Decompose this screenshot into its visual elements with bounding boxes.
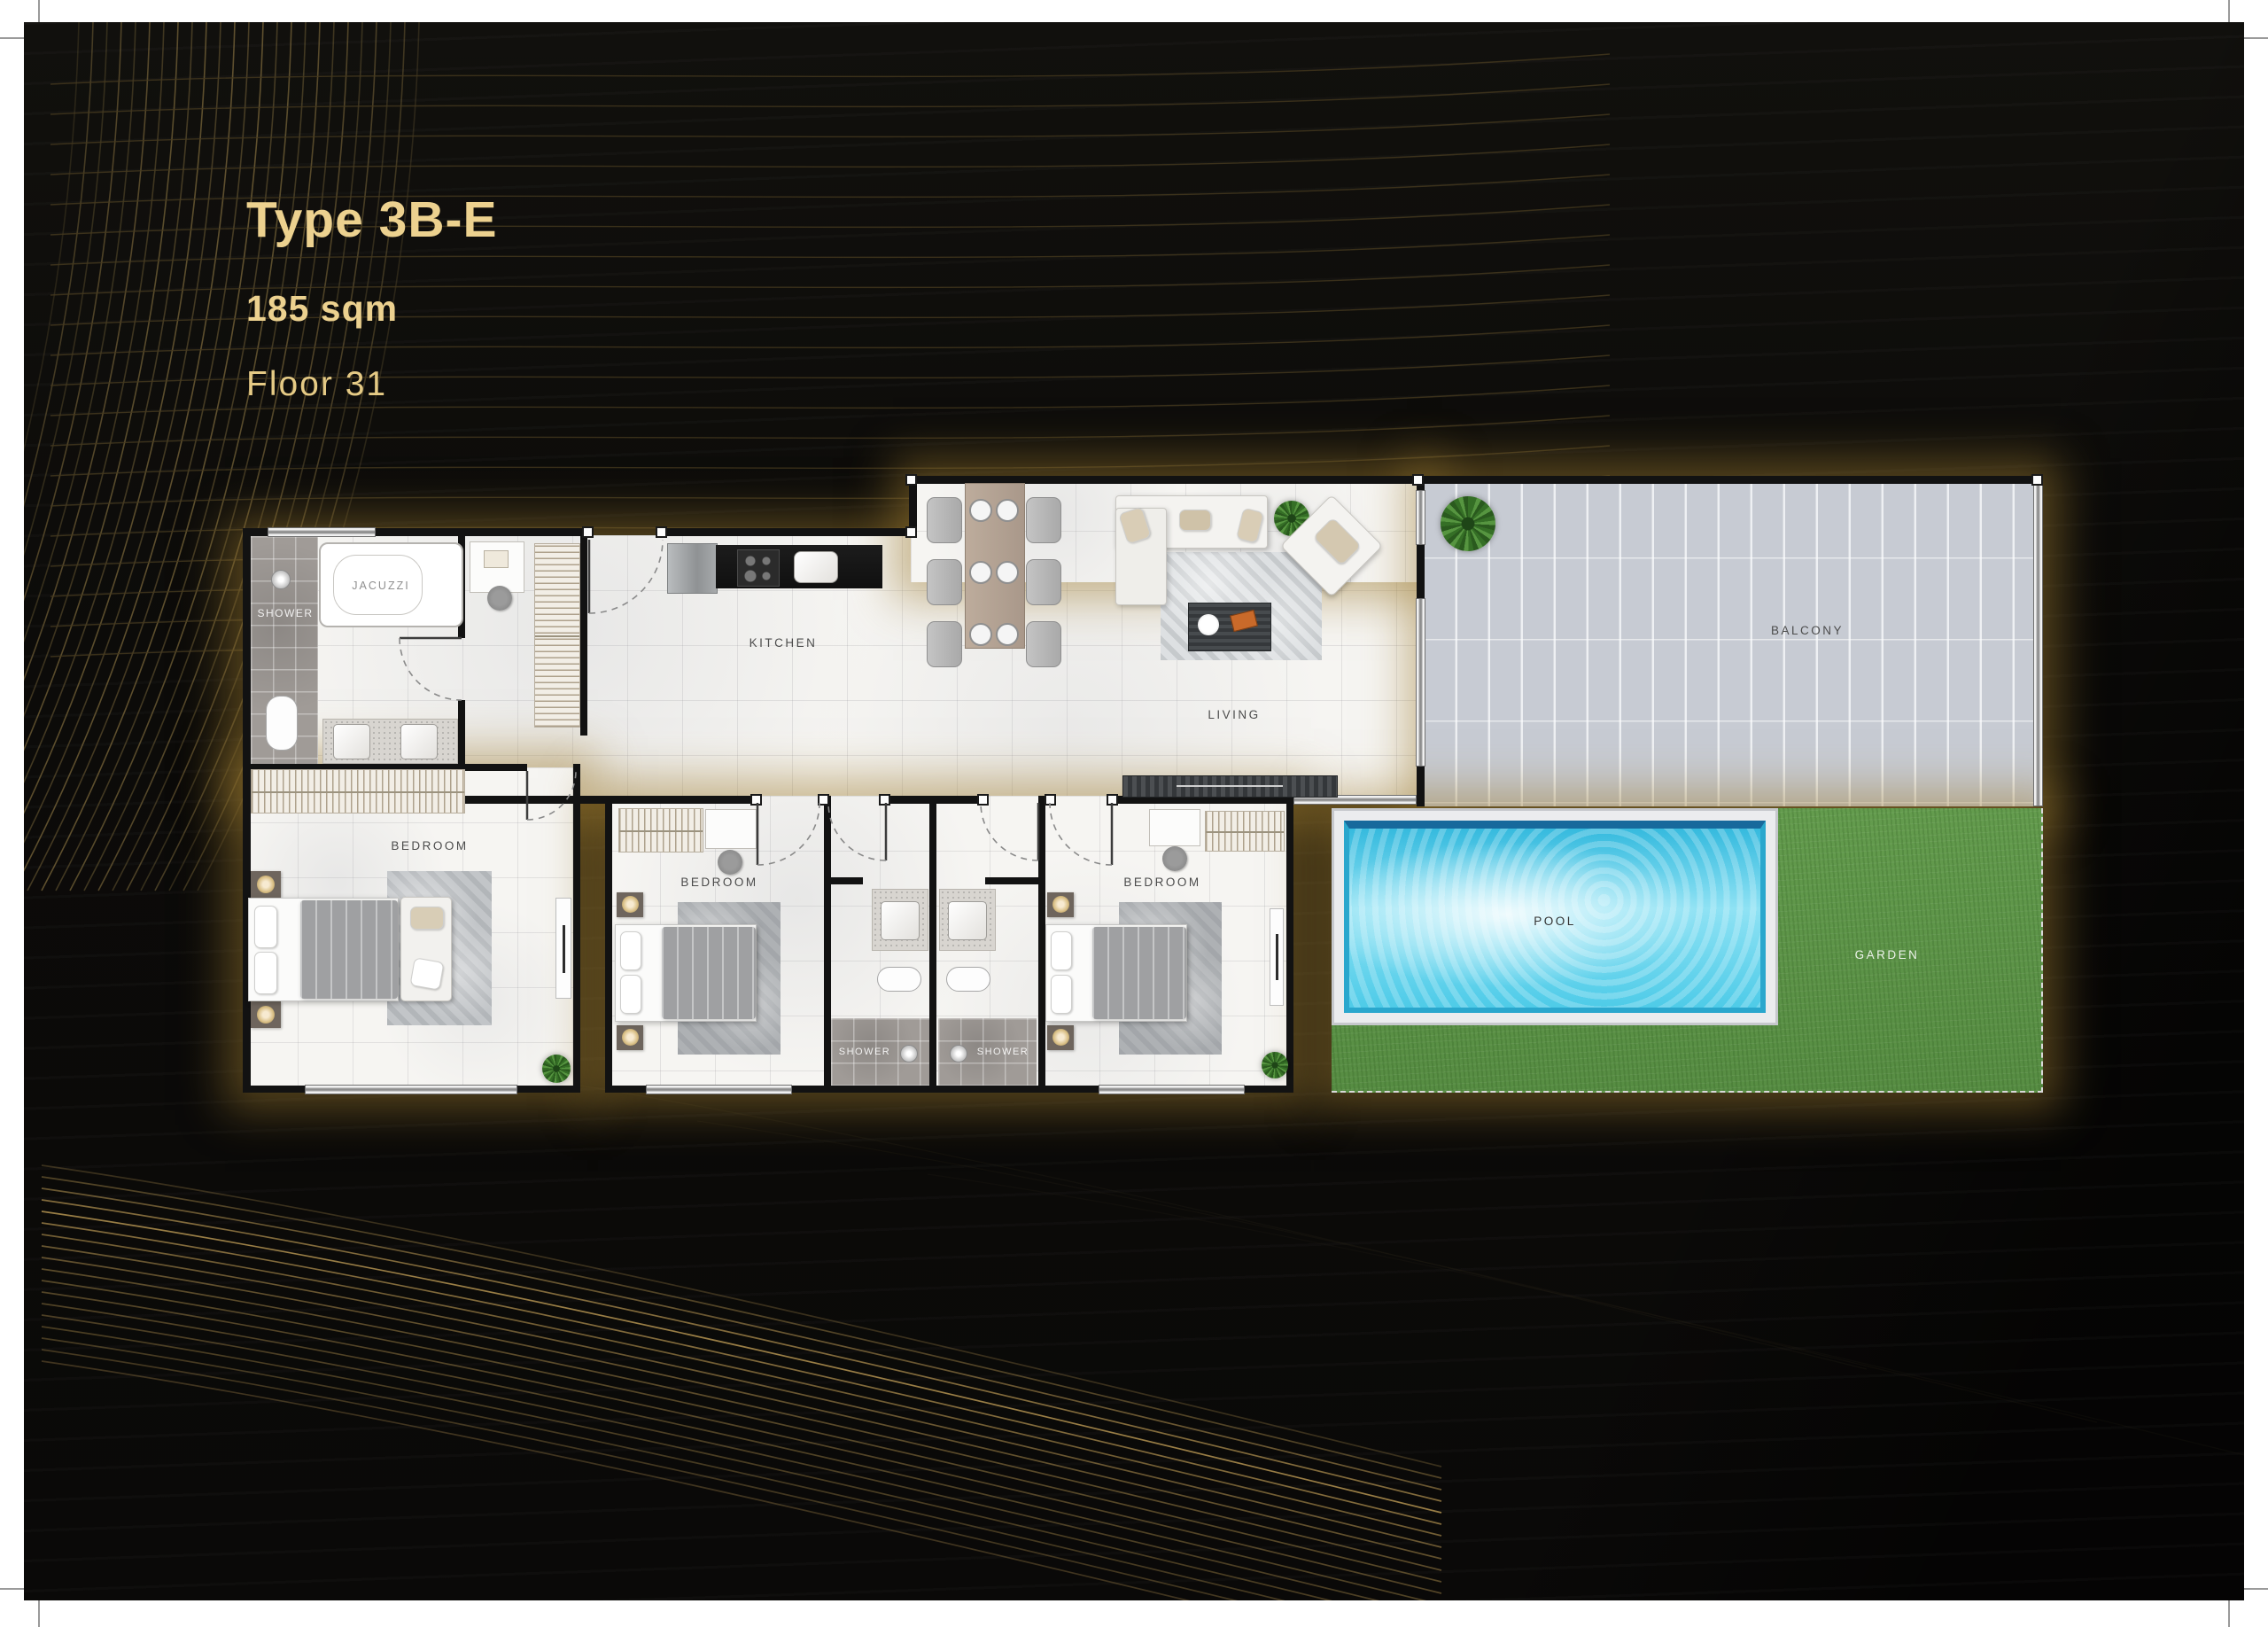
room-label-balcony: BALCONY	[1745, 624, 1869, 637]
floor-plan: POOL GARDEN BALCONY	[243, 474, 2047, 1094]
room-label-garden: GARDEN	[1825, 948, 1949, 961]
crop-mark	[2228, 1600, 2230, 1627]
page-title: Type 3B-E	[246, 191, 498, 249]
room-label-bedroom-master: BEDROOM	[368, 839, 492, 852]
door-swing-arcs	[243, 474, 2047, 1094]
room-label-jacuzzi: JACUZZI	[328, 580, 434, 592]
room-label-bedroom-2: BEDROOM	[657, 876, 781, 889]
crop-mark	[38, 1600, 40, 1627]
unit-floor: Floor 31	[246, 365, 498, 404]
room-label-kitchen: KITCHEN	[721, 636, 845, 650]
unit-area: 185 sqm	[246, 288, 498, 330]
room-label-shower-master: SHOWER	[248, 607, 322, 619]
room-label-shower-2: SHOWER	[829, 1047, 900, 1057]
brochure-page: Type 3B-E 185 sqm Floor 31 POOL GARDEN B…	[0, 0, 2268, 1627]
crop-mark	[0, 37, 27, 39]
room-label-shower-3: SHOWER	[967, 1047, 1038, 1057]
crop-mark	[2241, 1588, 2268, 1590]
room-label-living: LIVING	[1172, 708, 1296, 721]
crop-mark	[0, 1588, 27, 1590]
crop-mark	[2241, 37, 2268, 39]
title-block: Type 3B-E 185 sqm Floor 31	[246, 191, 498, 404]
room-label-bedroom-3: BEDROOM	[1100, 876, 1224, 889]
room-label-pool: POOL	[1493, 915, 1617, 928]
